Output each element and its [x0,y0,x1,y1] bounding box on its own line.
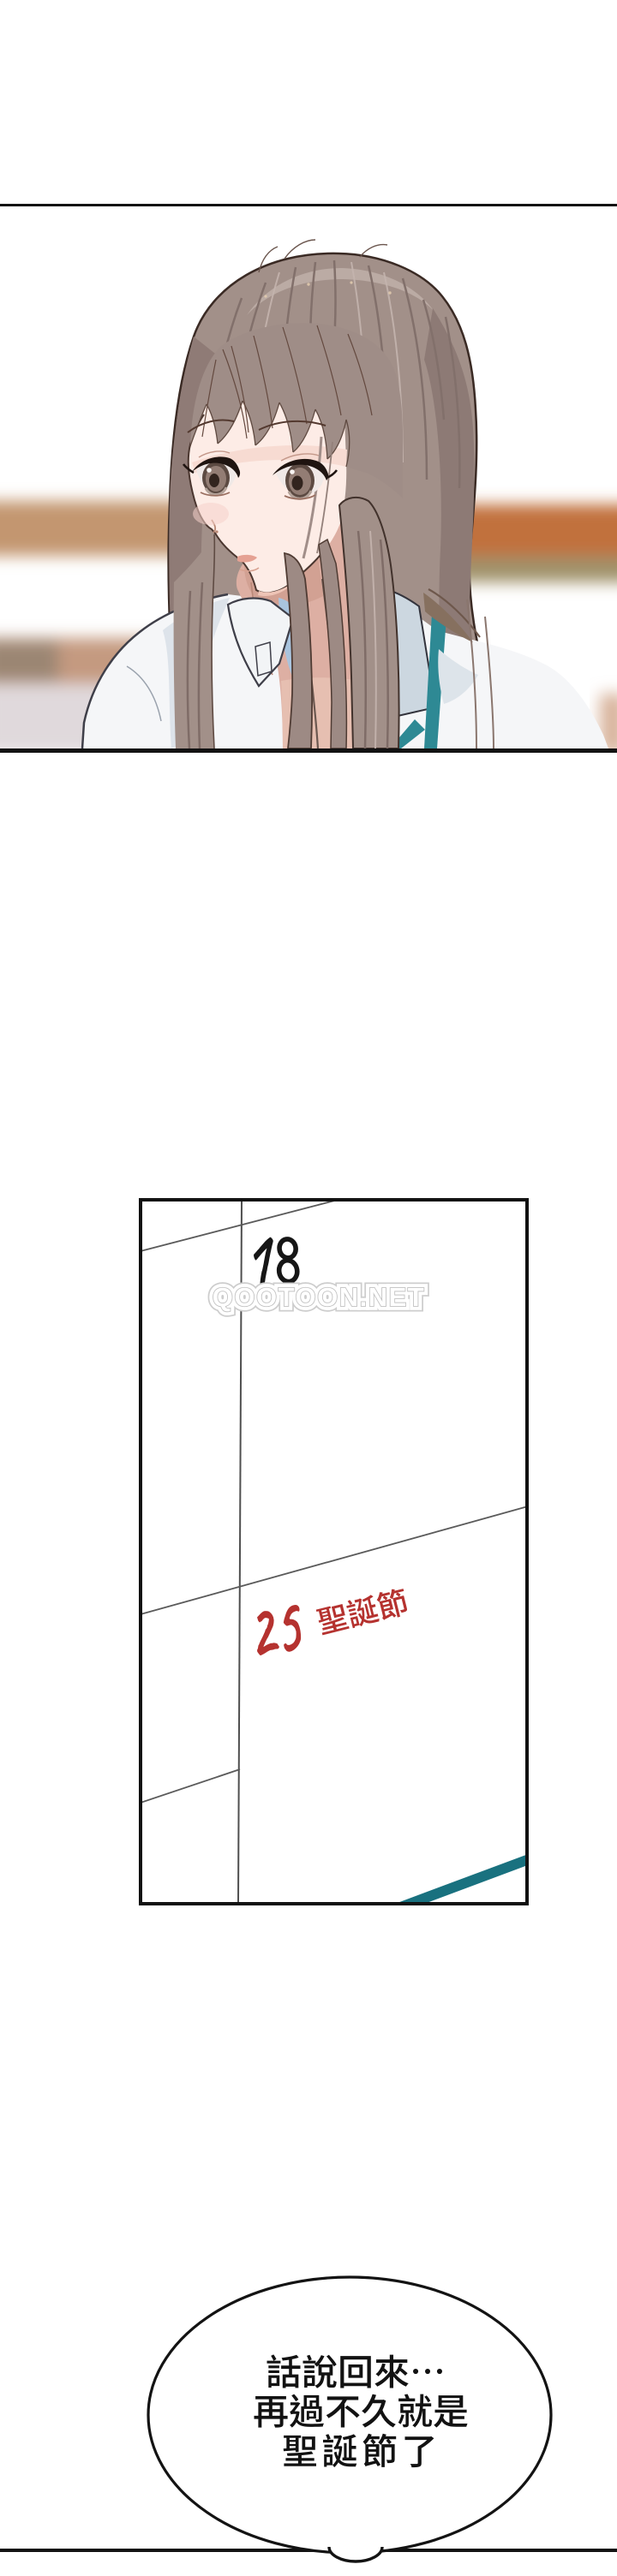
svg-text:QOOTOON.NET: QOOTOON.NET [213,1282,425,1312]
